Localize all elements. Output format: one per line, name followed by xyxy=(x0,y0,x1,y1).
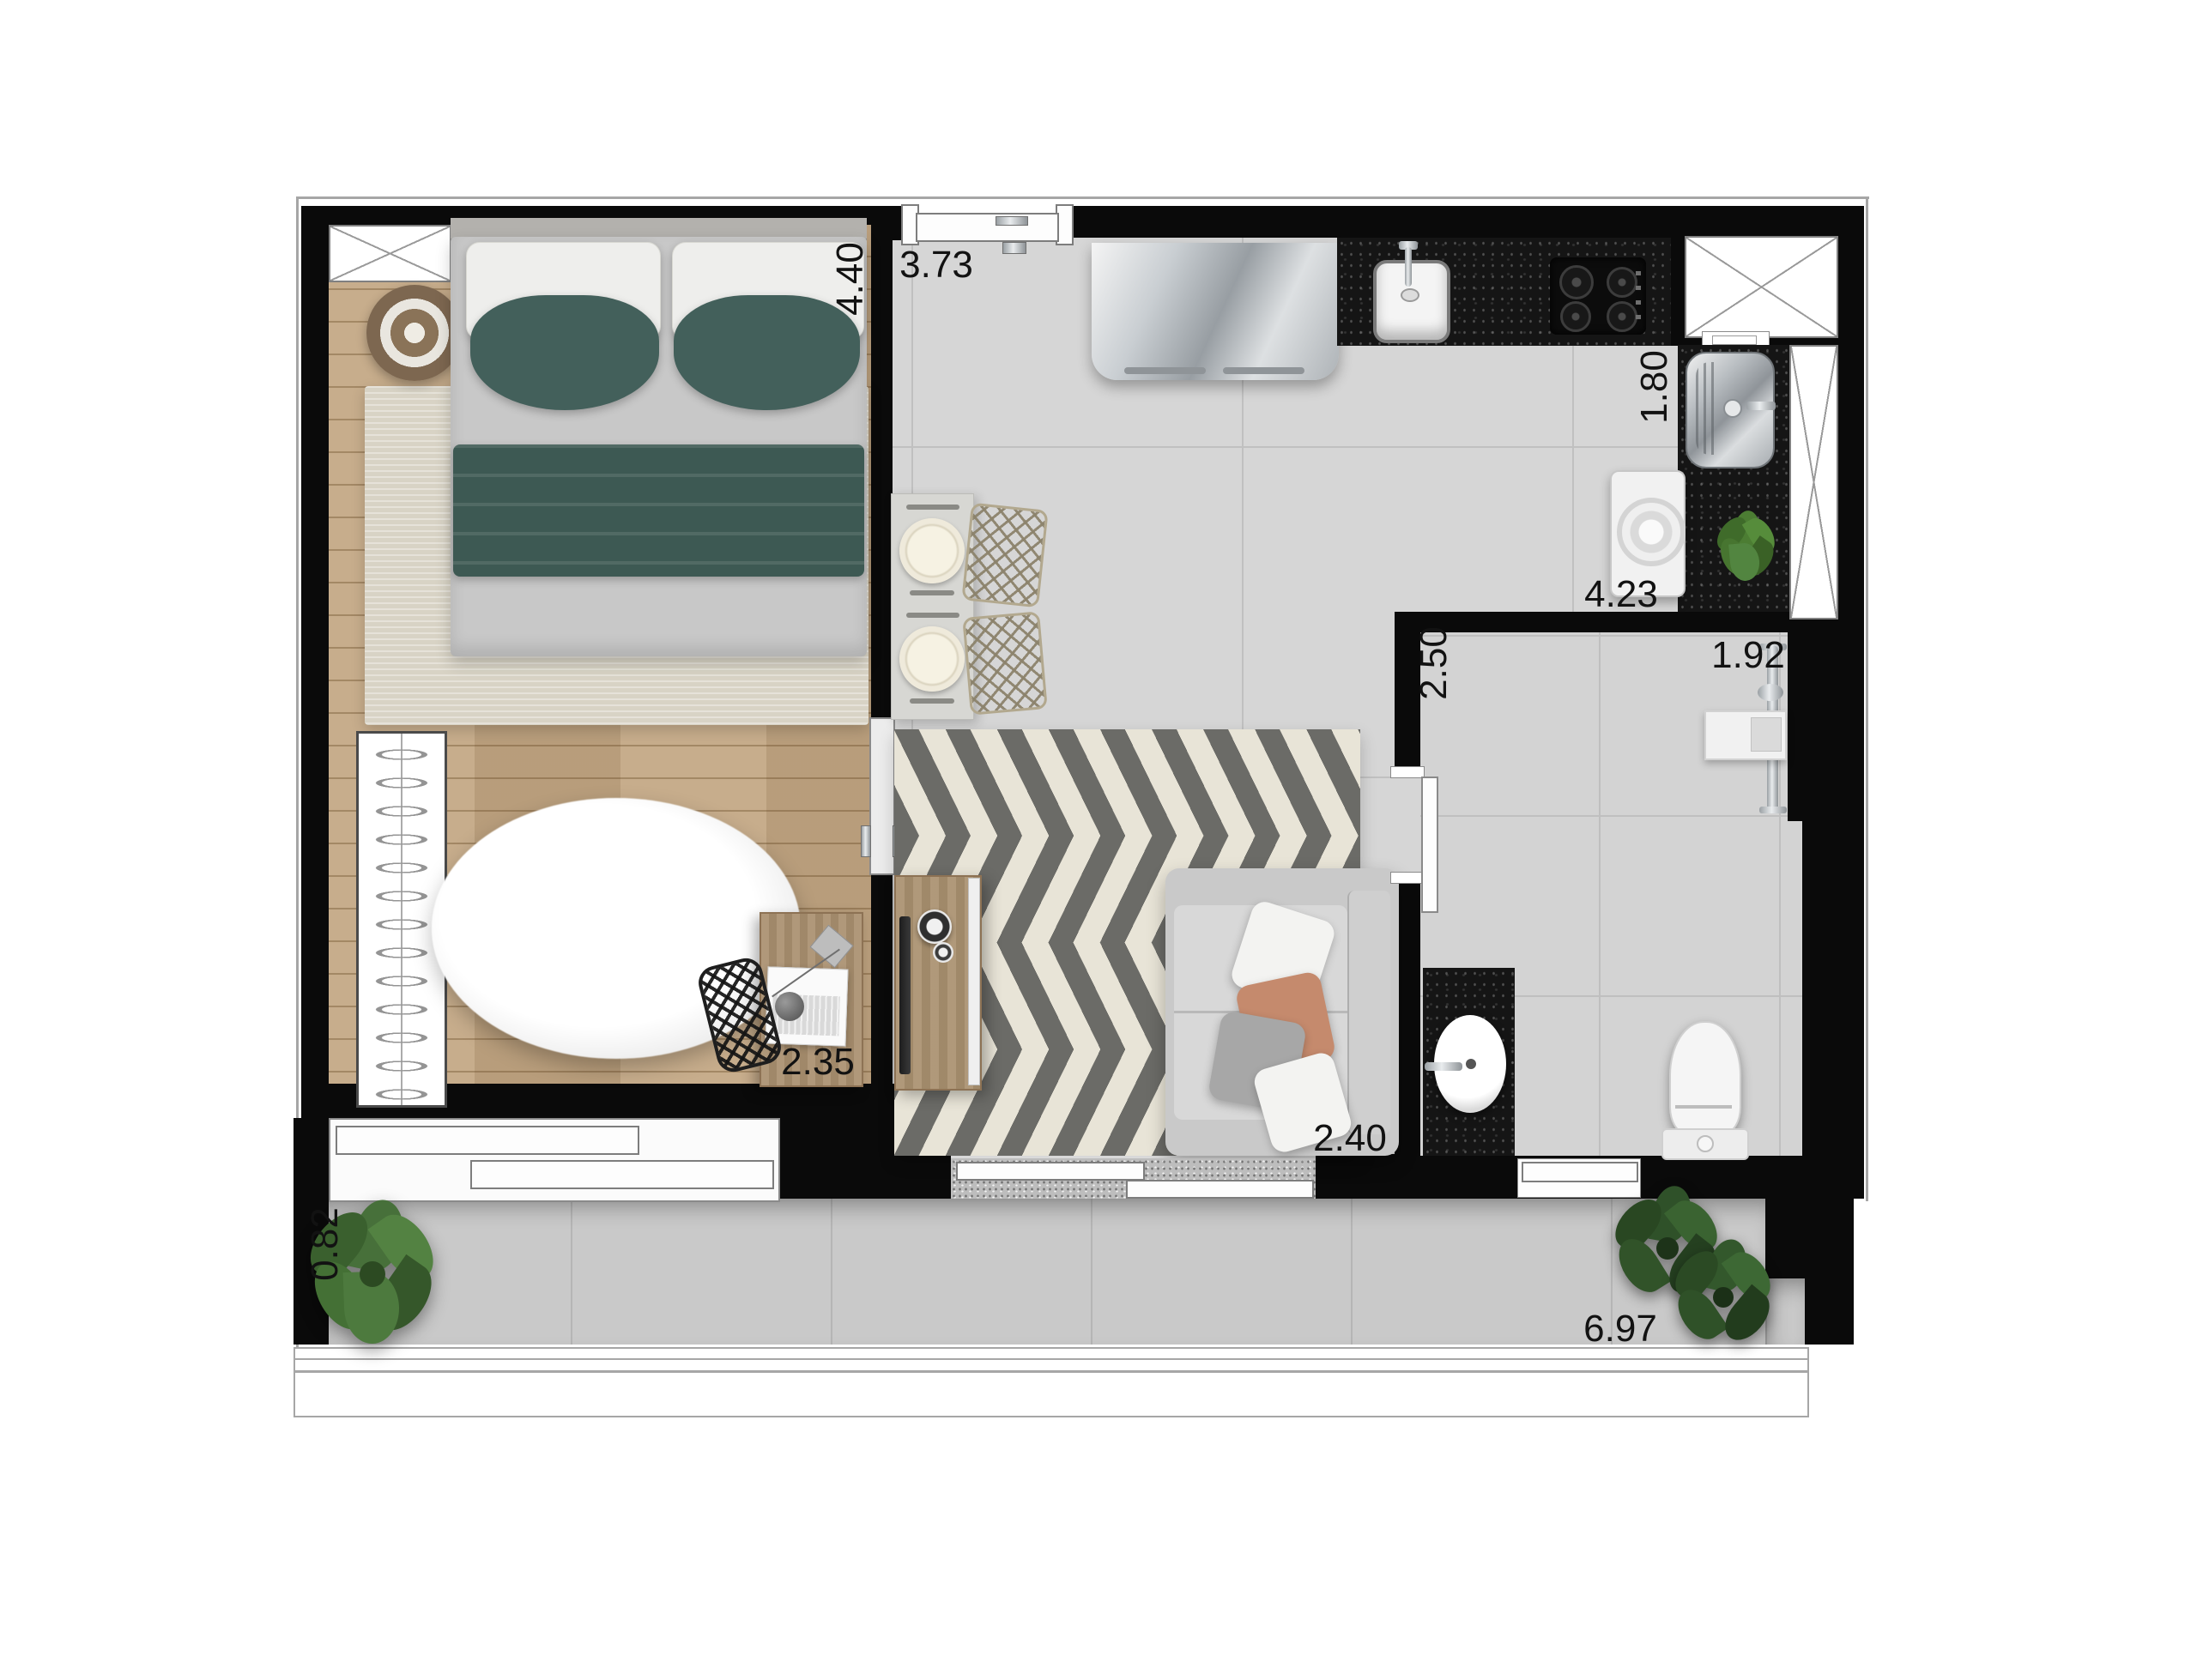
wall-left xyxy=(301,225,329,1118)
toilet-seat-hinge xyxy=(1675,1105,1732,1109)
shower-rail-bottom-icon xyxy=(1759,807,1787,813)
kitchen-faucet-spout-icon xyxy=(1405,247,1412,287)
wall-balcony-right-lower xyxy=(1805,1278,1854,1345)
shower-shelf-box xyxy=(1751,717,1782,752)
wall-bedroom-living-lower xyxy=(871,872,893,1118)
plate xyxy=(899,518,965,583)
bath-door-jamb xyxy=(1390,872,1425,884)
dimension-label: 2.50 xyxy=(1413,626,1456,700)
cooktop-knobs-icon xyxy=(1636,271,1641,323)
fork-icon xyxy=(910,590,954,595)
bathroom-balcony-door xyxy=(1522,1162,1638,1182)
toilet-flush-button-icon xyxy=(1697,1135,1714,1152)
bed-blanket-teal xyxy=(453,444,864,577)
railing-end-left xyxy=(294,1347,295,1417)
sliding-door-bedroom xyxy=(869,717,895,875)
wall-right xyxy=(1835,206,1864,1199)
wire-chair xyxy=(961,503,1048,608)
basin-drain-icon xyxy=(1466,1059,1476,1069)
railing-line xyxy=(294,1347,1809,1349)
floor-plan: 4.40 3.73 1.80 4.23 2.50 1.92 2.35 2.40 … xyxy=(0,0,2197,1680)
entry-door-handle-inner-icon xyxy=(1002,242,1026,254)
refrigerator-handle-icon xyxy=(1124,367,1206,374)
wire-chair xyxy=(962,611,1048,715)
service-counter-plant xyxy=(1708,509,1783,584)
balcony-floor xyxy=(312,1199,1765,1345)
bath-door-leaf xyxy=(1421,777,1438,913)
tv-screen-icon xyxy=(899,916,911,1074)
tank-drain-icon xyxy=(1723,399,1742,418)
balcony-plant-dark xyxy=(1663,1237,1788,1362)
wall-shower-notch xyxy=(1788,632,1835,821)
railing-end-right xyxy=(1807,1347,1809,1417)
wall-top-kitchen xyxy=(1070,206,1864,238)
railing-line xyxy=(294,1358,1809,1360)
wall-bedroom-living-upper xyxy=(871,225,893,719)
balcony-sliding-door-pane xyxy=(1126,1180,1314,1199)
round-side-table xyxy=(366,285,463,381)
dimension-label: 4.23 xyxy=(1584,573,1658,616)
bathroom-faucet-icon xyxy=(1425,1062,1462,1071)
knife-icon xyxy=(906,505,959,510)
washing-machine-door-icon xyxy=(1617,498,1686,566)
toilet-bowl xyxy=(1669,1021,1741,1134)
dimension-label: 3.73 xyxy=(899,244,973,287)
burner-icon xyxy=(1607,301,1637,332)
decor-tray-icon xyxy=(933,942,953,963)
shower-head-icon xyxy=(1758,684,1783,701)
mouse-icon xyxy=(775,992,804,1021)
entry-door-handle-icon xyxy=(996,216,1028,226)
plan-outline-right xyxy=(1866,196,1868,1201)
dimension-label: 0.82 xyxy=(304,1207,347,1281)
refrigerator xyxy=(1092,243,1339,380)
bed-pillow-teal xyxy=(470,295,659,410)
dimension-label: 6.97 xyxy=(1583,1308,1657,1351)
tv-console-front xyxy=(968,878,980,1085)
wall-bathroom-right xyxy=(1802,821,1835,1156)
bedroom-window-pane xyxy=(336,1126,639,1155)
kitchen-drain-icon xyxy=(1401,288,1419,302)
balcony-sliding-door-pane xyxy=(956,1162,1145,1181)
wall-living-bottom-right xyxy=(1316,1154,1420,1199)
shaft-box-x-bedroom-icon xyxy=(329,225,451,282)
plan-outline-top xyxy=(296,196,1869,199)
burner-icon xyxy=(1607,267,1637,298)
dimension-label: 4.40 xyxy=(829,242,872,316)
shaft-box-x-service-icon xyxy=(1685,236,1838,338)
decor-tray-icon xyxy=(917,909,952,944)
burner-icon xyxy=(1559,265,1594,299)
entry-door xyxy=(916,213,1059,242)
plate xyxy=(899,626,965,692)
wall-kitchen-service xyxy=(1671,206,1685,346)
sofa-back xyxy=(1347,891,1390,1134)
knife-icon xyxy=(906,613,959,618)
dimension-label: 1.92 xyxy=(1711,634,1785,677)
railing-line xyxy=(294,1416,1809,1417)
burner-icon xyxy=(1560,301,1591,332)
tank-faucet-icon xyxy=(1746,402,1776,410)
sliding-door-handle-icon xyxy=(861,825,871,857)
dimension-label: 1.80 xyxy=(1633,350,1676,424)
dimension-label: 2.40 xyxy=(1313,1117,1387,1160)
bath-door-jamb xyxy=(1390,766,1425,778)
dimension-label: 2.35 xyxy=(781,1041,855,1084)
refrigerator-handle-icon xyxy=(1223,367,1304,374)
railing-line xyxy=(294,1370,1809,1373)
service-passage-track xyxy=(1712,335,1757,345)
fork-icon xyxy=(910,698,954,704)
duct-column-x-icon xyxy=(1789,345,1838,619)
bedroom-window-pane xyxy=(470,1160,774,1189)
